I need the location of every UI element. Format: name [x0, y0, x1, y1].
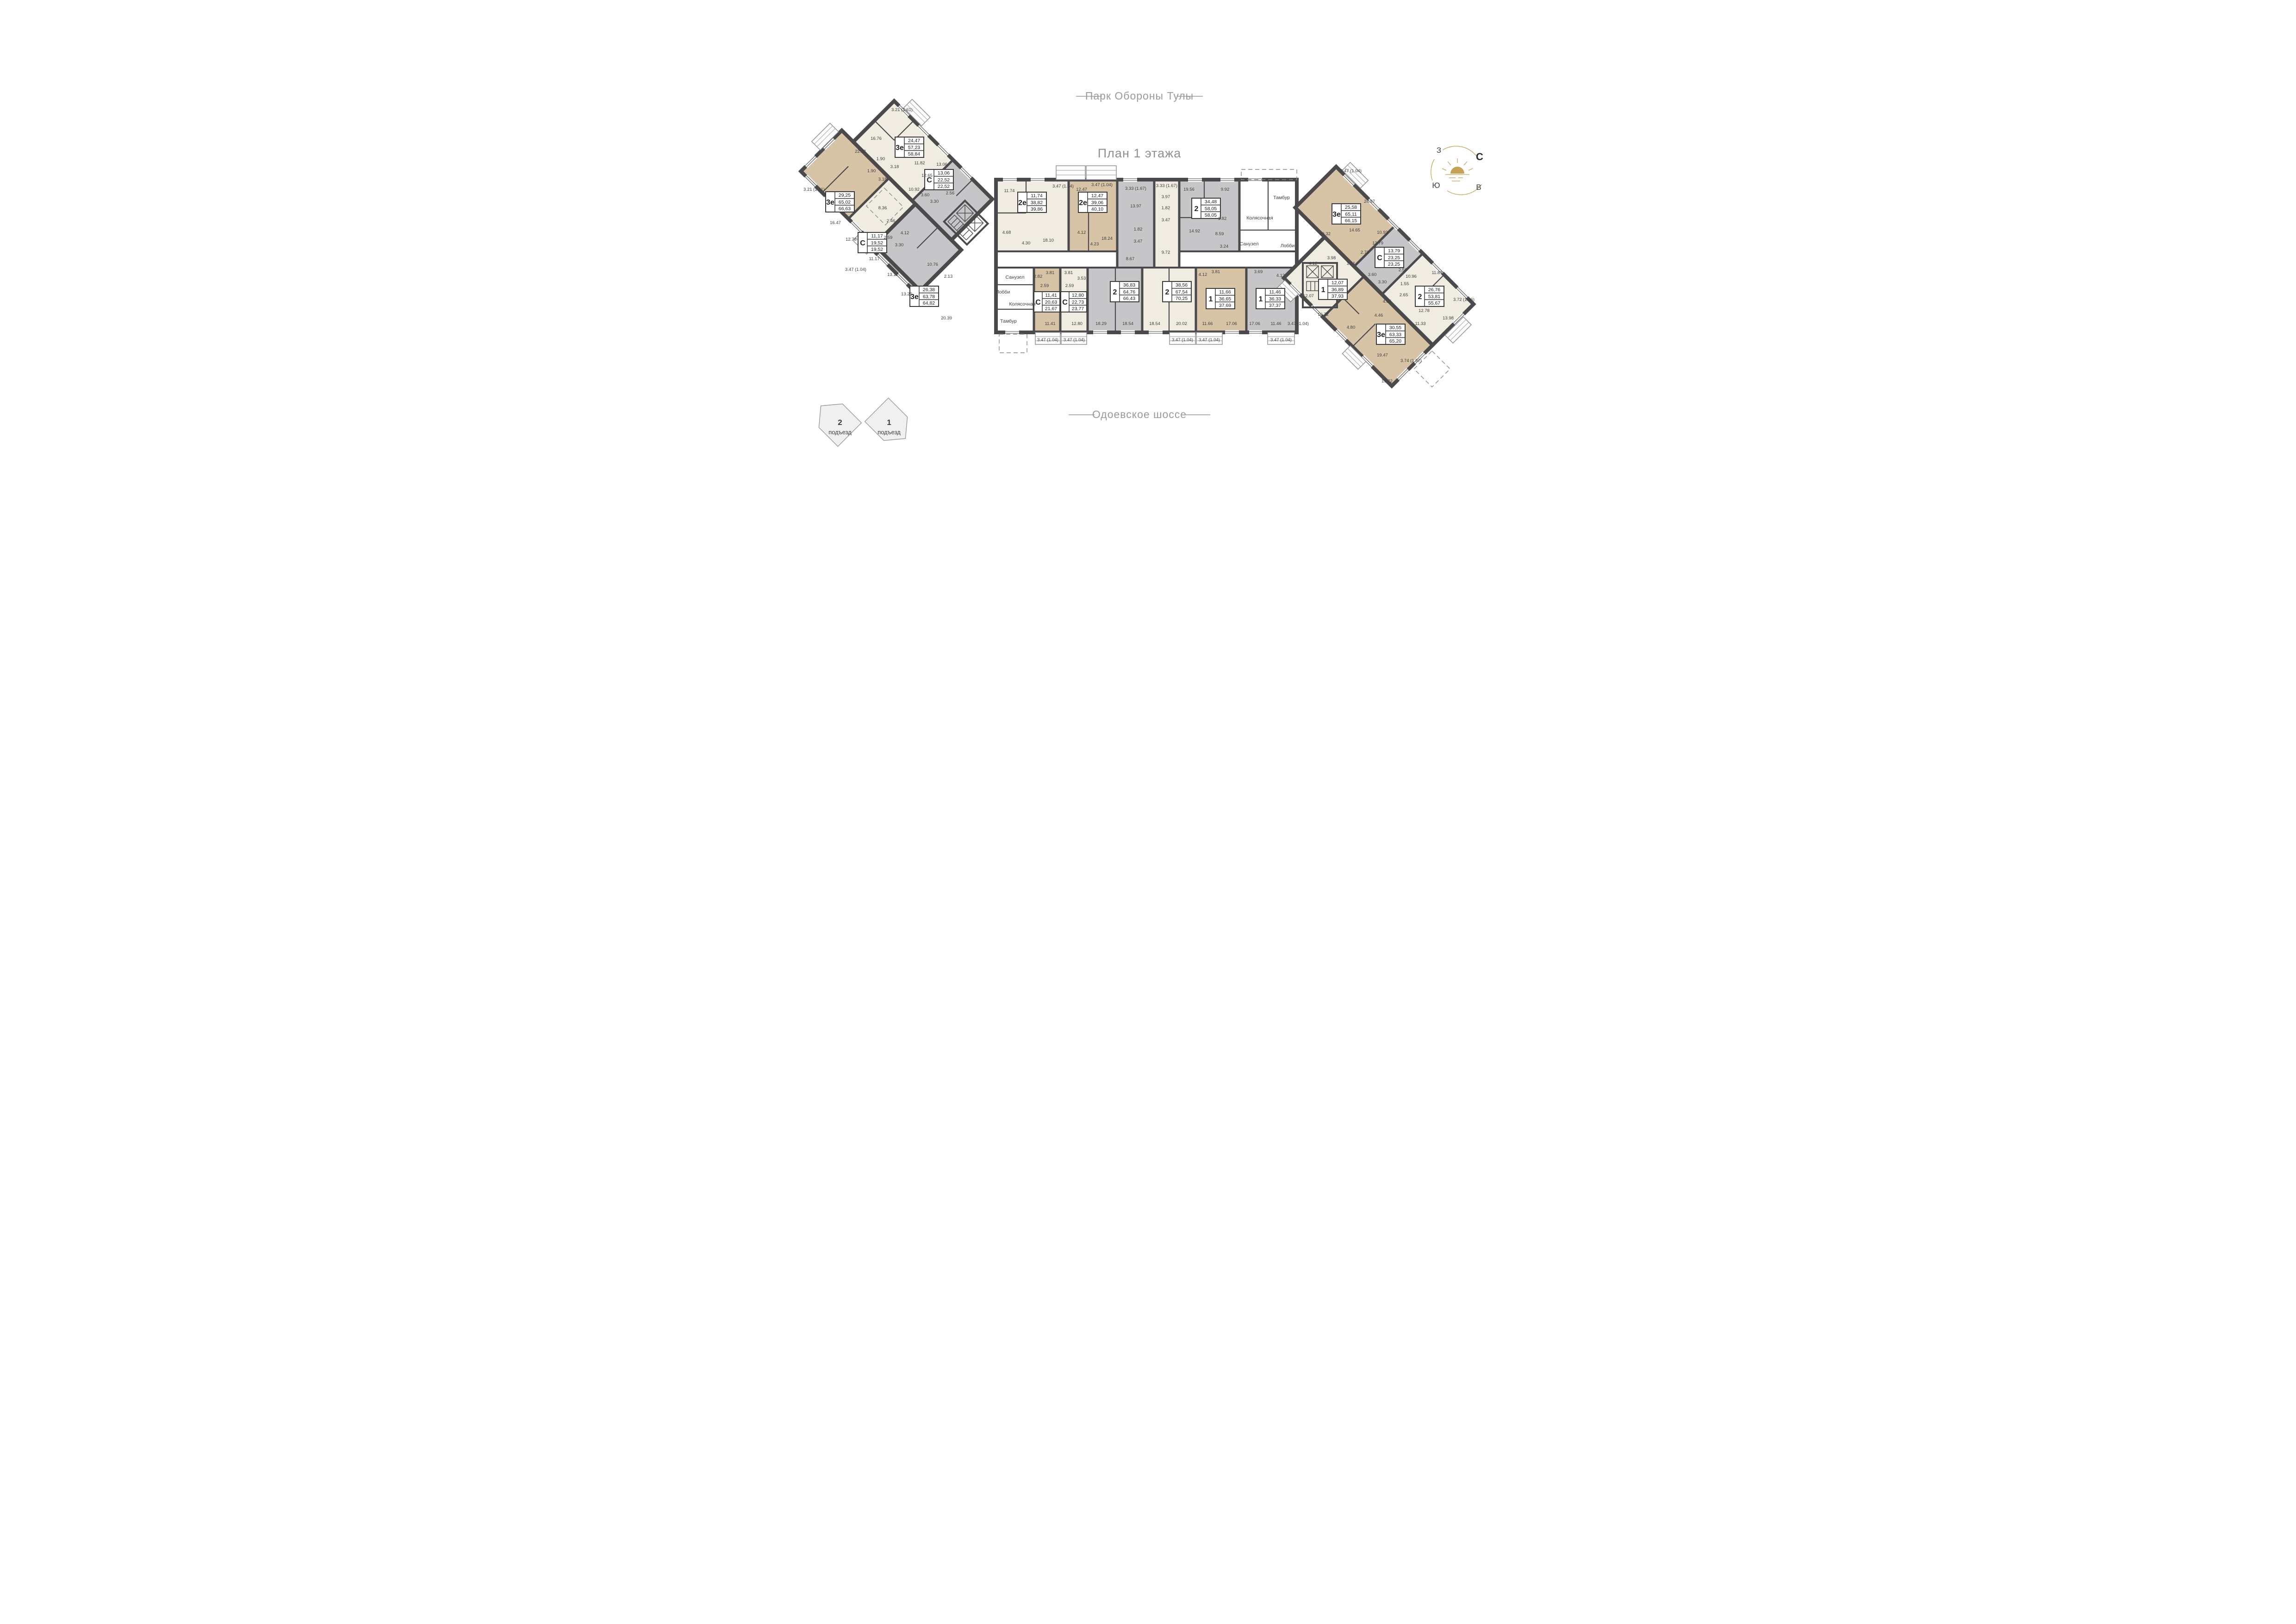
svg-text:65,02: 65,02 [838, 200, 850, 205]
svg-text:3.60: 3.60 [1368, 272, 1376, 277]
svg-text:66,43: 66,43 [1123, 296, 1135, 301]
svg-text:3е: 3е [1377, 331, 1385, 339]
info-box-c2e1: 2е 11,74 38,82 39,86 [1018, 192, 1046, 212]
svg-text:2: 2 [838, 418, 842, 427]
svg-text:39,06: 39,06 [1091, 200, 1103, 206]
svg-text:11.74: 11.74 [1004, 188, 1014, 194]
svg-text:2.59: 2.59 [884, 235, 892, 240]
svg-text:16.47: 16.47 [830, 220, 841, 225]
sun-icon [1442, 158, 1473, 181]
road-label: Одоевское шоссе [1092, 408, 1186, 420]
svg-text:3.47 (1.04): 3.47 (1.04) [1340, 169, 1362, 174]
svg-text:18.24: 18.24 [1101, 236, 1113, 241]
svg-text:13.06: 13.06 [936, 162, 947, 167]
svg-text:3.30: 3.30 [895, 243, 903, 248]
svg-text:17.06: 17.06 [1226, 321, 1237, 326]
svg-text:2.59: 2.59 [1065, 283, 1074, 288]
svg-text:10.93: 10.93 [1377, 230, 1388, 235]
svg-text:19.22: 19.22 [1381, 379, 1393, 384]
svg-text:58,05: 58,05 [1204, 212, 1216, 218]
svg-text:1.51: 1.51 [1346, 261, 1355, 266]
svg-text:19,52: 19,52 [871, 240, 883, 246]
svg-text:22.33: 22.33 [855, 149, 866, 154]
svg-text:11.82: 11.82 [914, 161, 925, 166]
park-label: Парк Обороны Тулы [1085, 90, 1193, 102]
svg-text:38,82: 38,82 [1030, 200, 1042, 206]
svg-text:1.90: 1.90 [867, 169, 876, 174]
svg-text:11,41: 11,41 [1045, 293, 1057, 298]
svg-text:4.23: 4.23 [1090, 242, 1099, 247]
svg-text:16.76: 16.76 [871, 136, 882, 141]
svg-text:2.46: 2.46 [886, 219, 895, 224]
info-box-l3g: 3е 26,38 63,78 64,82 [910, 286, 939, 306]
svg-text:64,76: 64,76 [1123, 289, 1135, 295]
svg-text:14.65: 14.65 [1349, 228, 1360, 233]
room-label-lobby-right: Лобби [1280, 243, 1294, 249]
svg-text:С: С [1035, 299, 1041, 306]
entrance-2-marker[interactable]: 2 подъезд [809, 394, 861, 446]
svg-text:57,23: 57,23 [908, 145, 920, 150]
svg-text:2е: 2е [1079, 199, 1087, 207]
park-landmark: Парк Обороны Тулы [1076, 90, 1203, 102]
info-box-c234: 2 34,48 58,05 58,05 [1192, 198, 1220, 219]
room-label-bath-right: Санузел [1239, 241, 1258, 247]
svg-text:36,83: 36,83 [1123, 282, 1135, 288]
info-box-c1g: 1 11,46 36,33 37,37 [1256, 288, 1285, 309]
svg-text:1.55: 1.55 [1400, 281, 1409, 287]
svg-text:23,25: 23,25 [1388, 262, 1400, 267]
floor-plan-page: Парк Обороны Тулы План 1 этажа Одоевское… [785, 0, 1511, 513]
svg-text:10.92: 10.92 [908, 187, 920, 192]
info-box-c2e2: 2е 12,47 39,06 40,10 [1078, 192, 1107, 212]
svg-text:3.97: 3.97 [1161, 194, 1170, 200]
svg-text:4.80: 4.80 [1346, 325, 1355, 330]
svg-text:65,20: 65,20 [1389, 338, 1401, 344]
svg-text:11,46: 11,46 [1269, 289, 1281, 295]
svg-text:26,76: 26,76 [1428, 287, 1440, 293]
compass-rose: З С Ю В [1431, 146, 1483, 195]
svg-text:64,82: 64,82 [922, 300, 934, 306]
svg-text:26,38: 26,38 [922, 287, 934, 293]
svg-text:2.59: 2.59 [1040, 283, 1049, 288]
entrance-1-marker[interactable]: 1 подъезд [865, 398, 917, 450]
info-box-r2: 2 26,76 53,81 55,67 [1415, 286, 1444, 306]
svg-text:3.18: 3.18 [890, 164, 899, 169]
svg-text:3е: 3е [1332, 211, 1341, 219]
svg-text:4.12: 4.12 [900, 231, 909, 236]
info-box-r3b: 3е 30,55 63,33 65,20 [1376, 324, 1405, 344]
svg-text:20,63: 20,63 [1045, 300, 1057, 305]
svg-text:13.12: 13.12 [887, 272, 898, 277]
svg-text:4.12: 4.12 [1077, 230, 1086, 235]
svg-text:подъезд: подъезд [877, 429, 901, 436]
svg-text:20.39: 20.39 [941, 316, 952, 321]
svg-text:17.06: 17.06 [1249, 321, 1260, 326]
svg-text:4.12: 4.12 [1276, 273, 1285, 278]
svg-text:39,86: 39,86 [1030, 206, 1042, 212]
svg-text:22,52: 22,52 [937, 177, 949, 183]
svg-text:66,63: 66,63 [838, 206, 850, 212]
svg-text:58,05: 58,05 [1204, 206, 1216, 212]
svg-text:18.54: 18.54 [1122, 321, 1133, 326]
svg-text:10.96: 10.96 [1406, 274, 1417, 279]
svg-text:3.30: 3.30 [930, 199, 939, 204]
svg-text:3.81: 3.81 [1064, 270, 1073, 275]
svg-text:13.26: 13.26 [901, 292, 912, 297]
svg-text:3.47 (1.04): 3.47 (1.04) [1091, 182, 1113, 187]
svg-text:2.82: 2.82 [1033, 274, 1042, 279]
svg-text:13.97: 13.97 [1130, 204, 1141, 209]
svg-text:1: 1 [1258, 295, 1263, 303]
svg-text:67,54: 67,54 [1175, 289, 1187, 295]
svg-text:53,81: 53,81 [1428, 294, 1440, 300]
svg-text:58,84: 58,84 [908, 151, 920, 157]
svg-text:2.56: 2.56 [1398, 268, 1407, 273]
svg-text:63,78: 63,78 [922, 294, 934, 300]
svg-text:18.54: 18.54 [1149, 321, 1160, 326]
svg-text:21,67: 21,67 [1045, 306, 1057, 312]
svg-text:11.33: 11.33 [1415, 321, 1425, 326]
svg-text:36,89: 36,89 [1331, 287, 1343, 293]
svg-text:25,58: 25,58 [1344, 205, 1356, 210]
svg-text:С: С [1377, 254, 1382, 262]
info-box-c1b: 1 11,66 36,65 37,69 [1206, 288, 1235, 309]
compass-north: С [1476, 151, 1483, 162]
svg-text:9.92: 9.92 [1220, 187, 1229, 192]
apartment-c2g-upper[interactable] [1117, 180, 1154, 268]
svg-text:11,17: 11,17 [871, 233, 883, 239]
info-box-l3b: 3е 29,25 65,02 66,63 [826, 192, 854, 212]
svg-text:55,67: 55,67 [1428, 300, 1440, 306]
svg-text:1: 1 [1321, 286, 1325, 294]
svg-text:70,25: 70,25 [1175, 296, 1187, 301]
svg-text:3.47 (1.04): 3.47 (1.04) [1199, 337, 1220, 343]
svg-text:3.47: 3.47 [1161, 218, 1170, 223]
svg-text:16.72: 16.72 [1318, 312, 1329, 317]
svg-text:2.56: 2.56 [946, 191, 954, 196]
svg-text:2: 2 [1194, 205, 1198, 213]
svg-text:3.47 (1.04): 3.47 (1.04) [1052, 184, 1074, 189]
info-box-c2c: 2 38,56 67,54 70,25 [1163, 281, 1191, 302]
svg-text:1: 1 [887, 418, 891, 427]
svg-text:12,47: 12,47 [1091, 193, 1103, 199]
svg-text:4.12: 4.12 [1308, 261, 1317, 266]
svg-text:40,10: 40,10 [1091, 206, 1103, 212]
svg-text:9.72: 9.72 [1161, 250, 1170, 255]
svg-text:12,80: 12,80 [1071, 293, 1083, 298]
info-box-r3a: 3е 25,58 65,11 66,15 [1332, 204, 1361, 224]
svg-text:12.47: 12.47 [1076, 187, 1087, 192]
room-label-stroller-left: Колясочная [1009, 301, 1035, 307]
svg-text:29,25: 29,25 [838, 193, 850, 198]
svg-text:22,52: 22,52 [937, 184, 949, 189]
svg-text:3.47 (1.04): 3.47 (1.04) [1064, 337, 1085, 343]
svg-text:19,52: 19,52 [871, 247, 883, 252]
svg-text:3.47: 3.47 [1133, 239, 1142, 244]
svg-text:2: 2 [1418, 293, 1422, 301]
info-box-r1: 1 12,07 36,89 37,93 [1319, 279, 1347, 300]
svg-text:3.47 (1.04): 3.47 (1.04) [1288, 321, 1309, 326]
svg-text:38,56: 38,56 [1175, 282, 1187, 288]
svg-text:4.05: 4.05 [1382, 299, 1391, 304]
svg-text:34,48: 34,48 [1204, 199, 1216, 205]
svg-text:8.59: 8.59 [1215, 231, 1224, 237]
svg-text:24,47: 24,47 [908, 138, 920, 144]
svg-text:подъезд: подъезд [828, 429, 852, 436]
svg-text:3.47 (1.04): 3.47 (1.04) [845, 267, 866, 272]
svg-text:12.65: 12.65 [921, 173, 933, 178]
svg-text:63,33: 63,33 [1389, 332, 1401, 337]
svg-text:3.30: 3.30 [1378, 280, 1387, 285]
svg-text:1.82: 1.82 [1218, 216, 1226, 221]
svg-text:11,66: 11,66 [1219, 289, 1231, 295]
svg-text:13,06: 13,06 [937, 170, 949, 176]
svg-text:4.68: 4.68 [1002, 230, 1011, 235]
svg-text:8.36: 8.36 [878, 206, 887, 211]
svg-text:2.65: 2.65 [1399, 293, 1408, 298]
svg-text:14.92: 14.92 [1189, 229, 1200, 234]
compass-east: В [1476, 183, 1481, 192]
svg-text:4.30: 4.30 [1021, 241, 1030, 246]
page-title: План 1 этажа [1097, 146, 1181, 160]
svg-text:19.47: 19.47 [1377, 353, 1388, 358]
svg-text:3.72 (1.86): 3.72 (1.86) [1453, 297, 1475, 302]
svg-text:66,15: 66,15 [1344, 218, 1356, 224]
floor-plan-svg: Парк Обороны Тулы План 1 этажа Одоевское… [785, 0, 1511, 513]
svg-text:2.73: 2.73 [1360, 250, 1369, 255]
svg-text:20.02: 20.02 [1176, 321, 1187, 326]
svg-text:12,07: 12,07 [1331, 280, 1343, 286]
svg-text:4.12: 4.12 [1198, 272, 1207, 277]
svg-text:3.60: 3.60 [921, 193, 929, 198]
svg-text:3.98: 3.98 [1327, 256, 1336, 261]
svg-text:3.33 (1.67): 3.33 (1.67) [1125, 186, 1146, 191]
room-label-stroller-right: Колясочная [1246, 215, 1273, 221]
svg-text:2е: 2е [1018, 199, 1027, 207]
svg-text:3.21 (1.61): 3.21 (1.61) [803, 187, 825, 192]
room-label-lobby-left: Лобби [996, 289, 1010, 295]
svg-text:13,79: 13,79 [1388, 248, 1400, 254]
svg-text:3.53: 3.53 [1077, 276, 1086, 281]
svg-text:11,74: 11,74 [1031, 193, 1043, 199]
svg-text:12.78: 12.78 [846, 237, 857, 242]
left-wing [785, 70, 1012, 300]
svg-text:23,77: 23,77 [1071, 306, 1083, 312]
svg-text:65,11: 65,11 [1345, 212, 1357, 217]
svg-text:1.82: 1.82 [1161, 206, 1170, 211]
svg-text:10.76: 10.76 [927, 262, 938, 267]
svg-text:3е: 3е [826, 199, 834, 206]
svg-text:23,25: 23,25 [1388, 255, 1400, 261]
svg-text:11.66: 11.66 [1202, 321, 1213, 326]
svg-text:8.67: 8.67 [1126, 256, 1134, 262]
svg-text:С: С [1062, 299, 1068, 306]
room-label-tambour-right: Тамбур [1273, 195, 1290, 200]
svg-text:1: 1 [1208, 295, 1213, 303]
svg-text:36,65: 36,65 [1219, 296, 1231, 302]
svg-text:1.82: 1.82 [1133, 227, 1142, 232]
svg-text:3.21 (1.61): 3.21 (1.61) [891, 107, 913, 112]
info-box-rc: С 13,79 23,25 23,25 [1375, 247, 1404, 268]
info-box-ccc: С 12,80 22,73 23,77 [1061, 292, 1087, 312]
dashed-area-bottom [999, 334, 1027, 353]
svg-text:С: С [860, 239, 865, 247]
svg-text:37,69: 37,69 [1219, 303, 1231, 308]
info-box-l3a: 3е 24,47 57,23 58,84 [895, 137, 924, 157]
svg-text:11.17: 11.17 [869, 256, 879, 262]
svg-text:37,37: 37,37 [1269, 303, 1281, 308]
svg-text:11.89: 11.89 [1431, 270, 1442, 275]
compass-south: Ю [1432, 181, 1440, 190]
info-box-lcc: С 11,17 19,52 19,52 [858, 232, 887, 253]
svg-text:3.47 (1.04): 3.47 (1.04) [1037, 337, 1058, 343]
svg-text:2: 2 [1113, 288, 1117, 296]
svg-text:12.07: 12.07 [1303, 294, 1314, 299]
svg-text:18.29: 18.29 [1095, 321, 1107, 326]
svg-text:12.78: 12.78 [1419, 308, 1430, 313]
room-label-tambour-left: Тамбур [1000, 319, 1017, 324]
svg-text:1.90: 1.90 [876, 156, 885, 162]
svg-text:10.32: 10.32 [1319, 231, 1331, 237]
svg-text:19.56: 19.56 [1183, 187, 1195, 192]
svg-text:3.47 (1.04): 3.47 (1.04) [1270, 337, 1292, 343]
svg-text:3.33 (1.67): 3.33 (1.67) [1156, 183, 1177, 188]
svg-text:30,55: 30,55 [1389, 325, 1401, 331]
svg-text:2.13: 2.13 [944, 274, 952, 279]
svg-text:36,33: 36,33 [1269, 296, 1281, 302]
svg-text:3.81: 3.81 [1045, 270, 1054, 275]
road-landmark: Одоевское шоссе [1069, 408, 1210, 420]
compass-west: З [1436, 146, 1441, 155]
svg-text:13.98: 13.98 [1443, 316, 1454, 321]
svg-text:3е: 3е [896, 144, 904, 152]
svg-text:4.46: 4.46 [1374, 313, 1383, 318]
svg-text:3.24: 3.24 [1220, 244, 1228, 249]
info-box-l3c: С 13,06 22,52 22,52 [925, 169, 953, 190]
room-label-bath-left: Санузел [1005, 275, 1024, 280]
svg-text:24.97: 24.97 [1364, 199, 1375, 204]
svg-text:3.69: 3.69 [1254, 269, 1263, 275]
info-box-ccb: С 11,41 20,63 21,67 [1034, 292, 1060, 312]
svg-text:18.10: 18.10 [1043, 238, 1054, 243]
svg-text:3.81: 3.81 [1211, 269, 1220, 275]
svg-text:12.80: 12.80 [1071, 321, 1083, 326]
svg-text:3.74 (1.87): 3.74 (1.87) [1400, 358, 1422, 363]
svg-text:3.47 (1.04): 3.47 (1.04) [1172, 337, 1193, 343]
svg-text:2: 2 [1165, 288, 1169, 296]
info-box-c2g: 2 36,83 64,76 66,43 [1110, 281, 1139, 302]
svg-text:13.79: 13.79 [1372, 241, 1383, 246]
svg-text:37,93: 37,93 [1331, 294, 1343, 299]
svg-text:22,73: 22,73 [1071, 300, 1083, 305]
svg-text:11.46: 11.46 [1270, 321, 1281, 326]
svg-text:11.41: 11.41 [1045, 321, 1055, 326]
svg-text:3.18: 3.18 [878, 177, 887, 182]
